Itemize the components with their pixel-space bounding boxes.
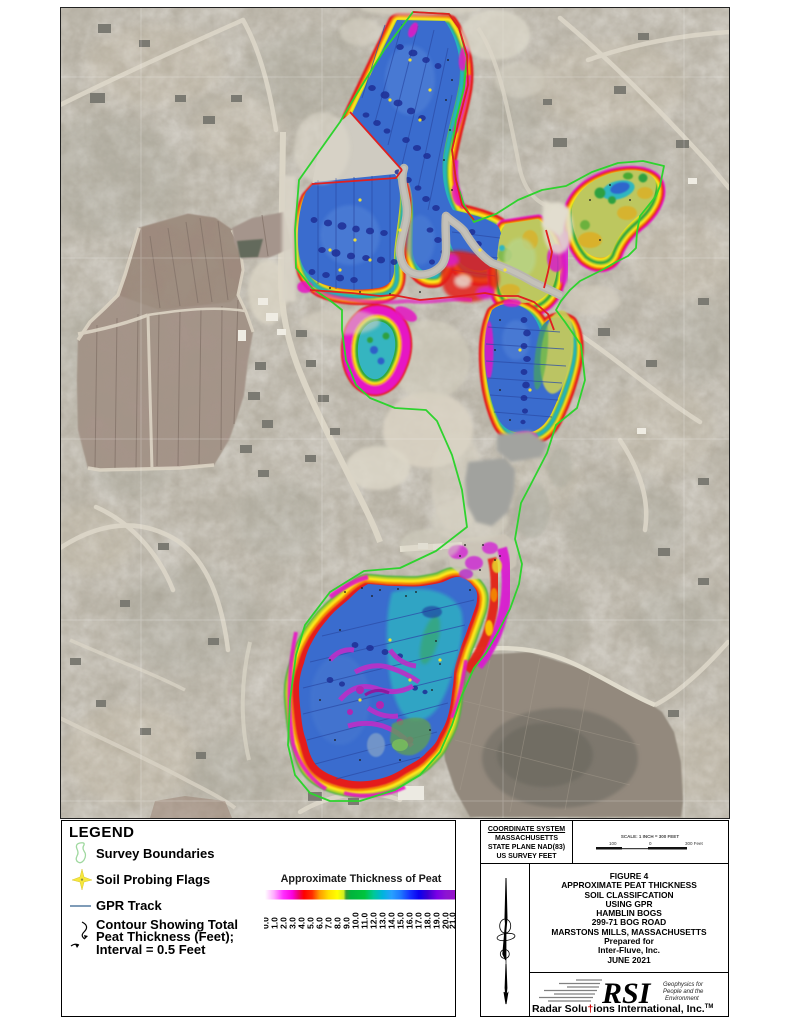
svg-text:300 Feet: 300 Feet [685,841,704,846]
svg-text:21.0: 21.0 [448,912,457,929]
svg-text:SCALE: 1 INCH = 300 FEET: SCALE: 1 INCH = 300 FEET [621,834,679,839]
svg-text:Environment: Environment [665,996,699,1002]
svg-text:0: 0 [649,841,652,846]
svg-text:100: 100 [609,841,617,846]
svg-text:Geophysics for: Geophysics for [663,982,704,988]
svg-text:People and the: People and the [663,989,704,995]
